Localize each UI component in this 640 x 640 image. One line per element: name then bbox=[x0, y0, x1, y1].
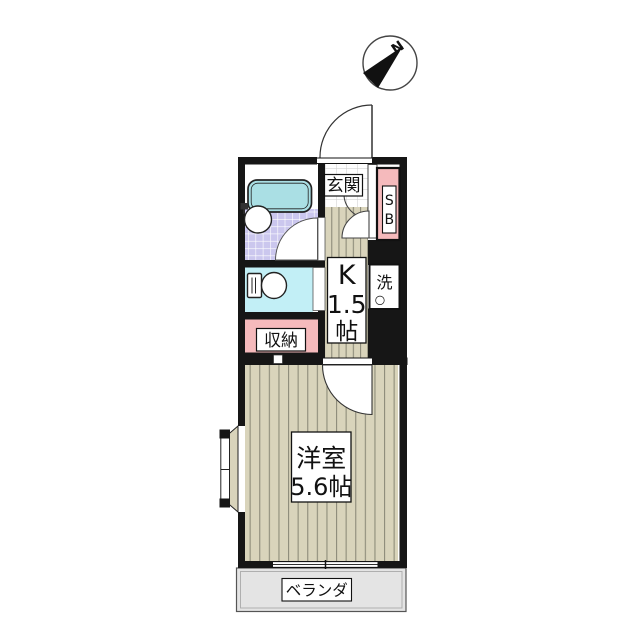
kitchen-label-k: K bbox=[338, 260, 357, 291]
toilet-tank-icon bbox=[248, 274, 262, 298]
floor-plan-svg: N bbox=[0, 0, 640, 640]
wall-left-lower bbox=[238, 512, 245, 568]
toilet-bowl-icon bbox=[262, 273, 287, 299]
closet-door-mark bbox=[274, 355, 283, 364]
wall-left-upper bbox=[238, 157, 245, 426]
bay-window-post-bottom bbox=[220, 499, 231, 508]
bay-window bbox=[220, 426, 239, 512]
main-room-label: 洋室 bbox=[296, 444, 346, 473]
floor-plan-page: N bbox=[0, 0, 640, 640]
kitchen-label-size: 1.5 bbox=[327, 290, 367, 319]
wall-bath-toilet bbox=[238, 260, 325, 268]
toilet-door bbox=[313, 268, 325, 311]
veranda-label: ベランダ bbox=[286, 582, 348, 600]
kitchen-label-jo: 帖 bbox=[335, 319, 358, 345]
faucet-icon bbox=[241, 203, 249, 210]
laundry-drain-mark: ○ bbox=[375, 293, 385, 307]
bay-window-post-top bbox=[220, 430, 231, 439]
washbasin-icon bbox=[245, 206, 272, 233]
wall-toilet-closet bbox=[238, 312, 325, 320]
wall-block-right-b bbox=[368, 309, 407, 366]
k-room-door-opening bbox=[323, 358, 372, 366]
entrance-door-arc bbox=[320, 105, 372, 158]
compass: N bbox=[363, 36, 417, 90]
main-room-size-label: 5.6帖 bbox=[290, 473, 352, 501]
bathroom-door-opening bbox=[318, 218, 325, 261]
wall-k-room-right bbox=[372, 358, 408, 366]
shoebox-label-s: S bbox=[385, 193, 394, 209]
wall-block-right-a bbox=[368, 240, 407, 265]
wall-bottom-right bbox=[378, 561, 408, 568]
shoebox-label-b: B bbox=[384, 212, 394, 228]
laundry-label: 洗 bbox=[376, 273, 392, 292]
wall-bottom-left bbox=[238, 561, 273, 568]
wall-top-left bbox=[238, 157, 317, 165]
closet-label: 収納 bbox=[264, 331, 298, 351]
genkan-label: 玄関 bbox=[327, 176, 361, 196]
